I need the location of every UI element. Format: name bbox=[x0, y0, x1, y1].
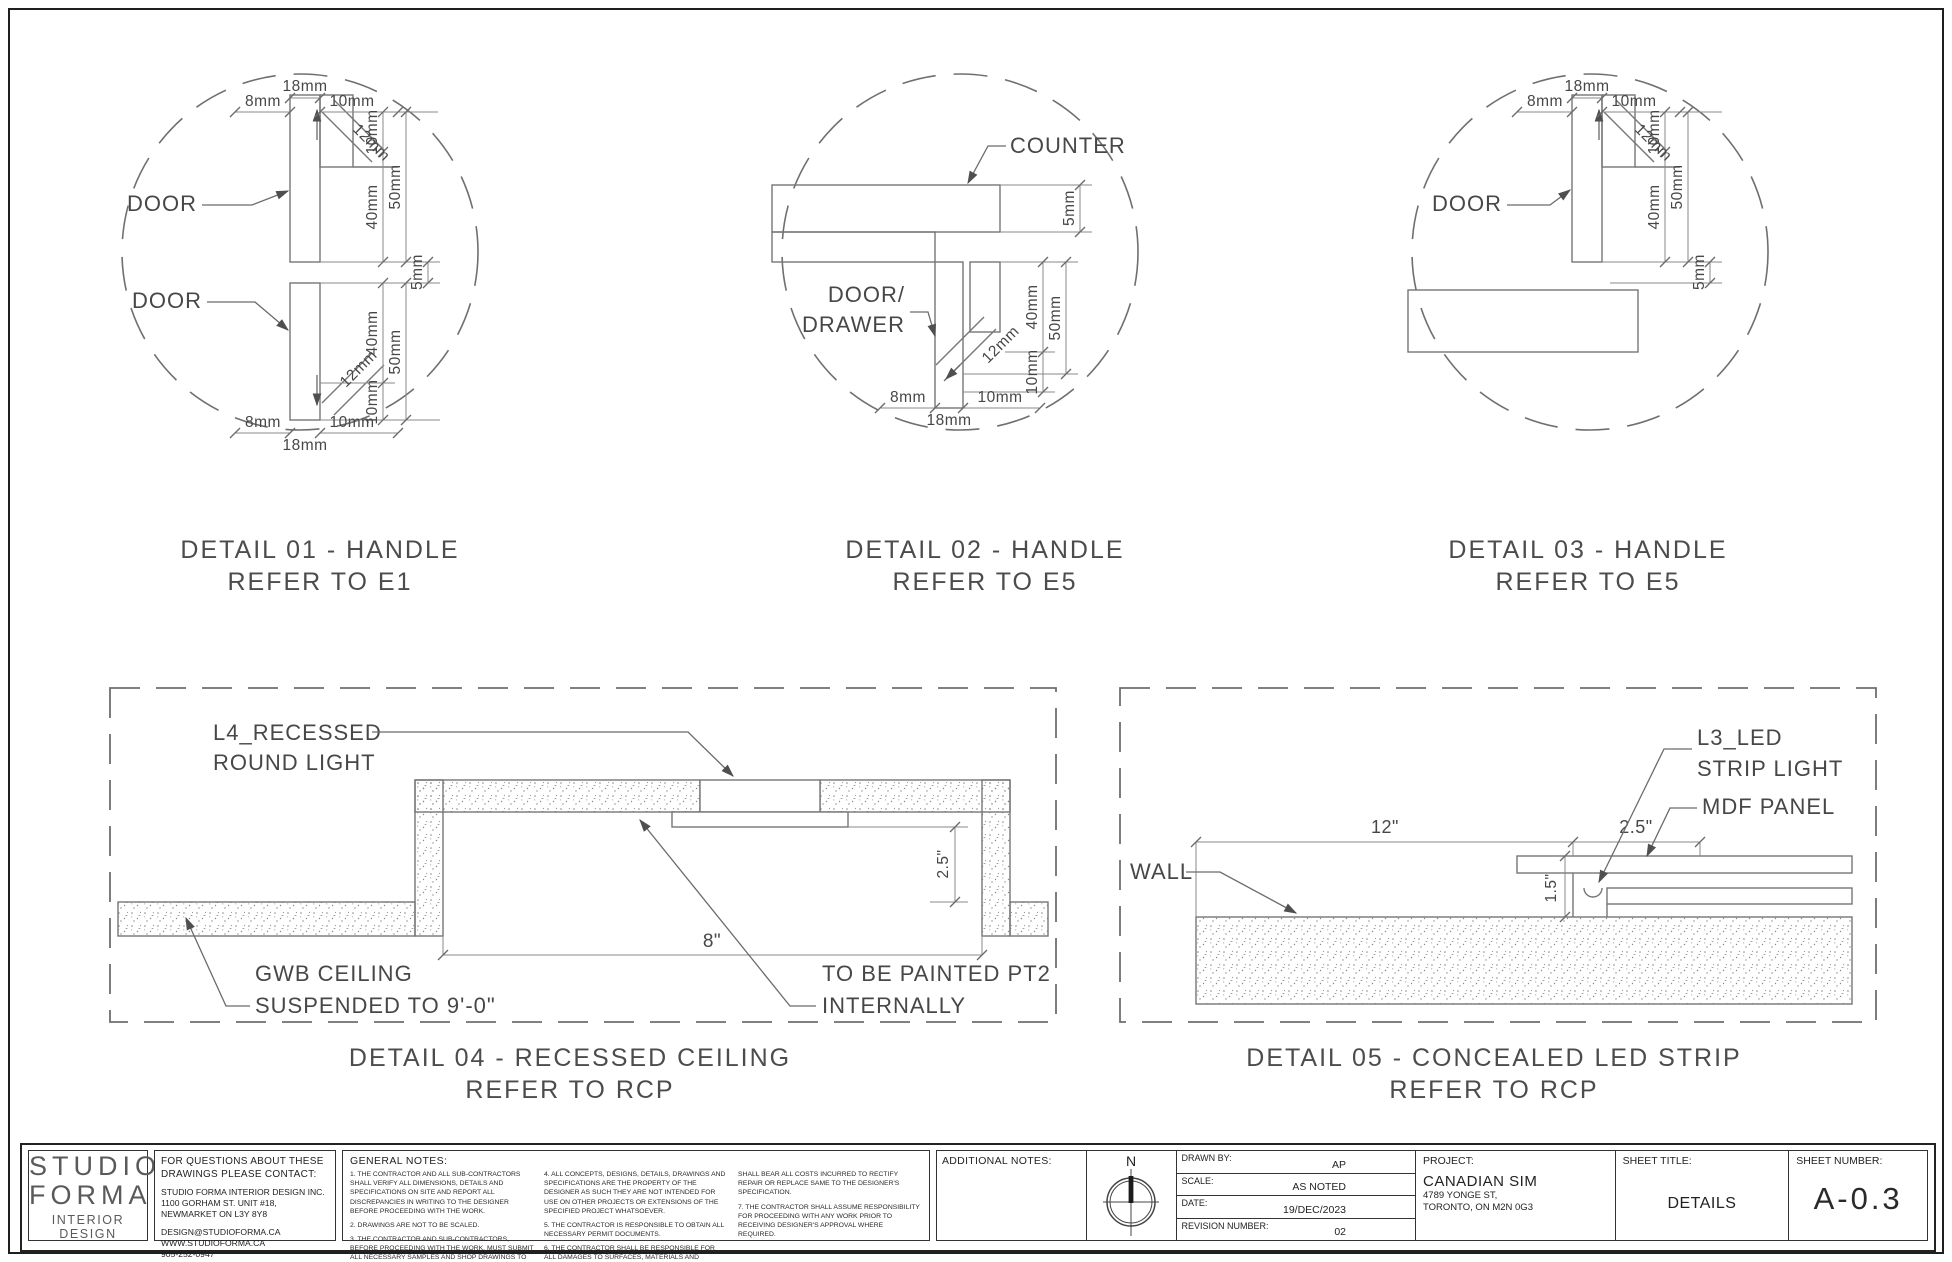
d02-door-label-2: DRAWER bbox=[802, 312, 905, 337]
d05-led-strip bbox=[1584, 888, 1602, 897]
d01-dim-50mm-stack: 50mm bbox=[387, 164, 404, 209]
sheet-number-cell: SHEET NUMBER: A-0.3 bbox=[1789, 1151, 1927, 1240]
contact-address-1: 1100 GORHAM ST. UNIT #18, bbox=[161, 1198, 329, 1209]
d03-dim-10mm: 10mm bbox=[1611, 93, 1656, 110]
d04-gwb-label-2: SUSPENDED TO 9'-0" bbox=[255, 993, 496, 1018]
contact-address-2: NEWMARKET ON L3Y 8Y8 bbox=[161, 1209, 329, 1220]
logo-studio: STUDIO bbox=[29, 1153, 147, 1180]
d05-mdf-panel-top bbox=[1517, 856, 1852, 873]
d02-dim-8mm-bottom: 8mm bbox=[890, 389, 926, 406]
d05-led-label-1: L3_LED bbox=[1697, 725, 1783, 750]
detail-02-handle: 5mm 40mm 50mm 10mm 12mm 8mm 10mm 18mm CO… bbox=[772, 74, 1138, 596]
d04-lower-ceiling-left bbox=[118, 902, 415, 936]
d04-paint-leader bbox=[640, 820, 816, 1006]
d01-upper-door bbox=[290, 95, 320, 262]
d02-door-label-1: DOOR/ bbox=[828, 282, 905, 307]
contact-heading-2: DRAWINGS PLEASE CONTACT: bbox=[161, 1169, 329, 1182]
d04-light-label-2: ROUND LIGHT bbox=[213, 750, 376, 775]
d01-dim-18mm-bottom: 18mm bbox=[282, 437, 327, 454]
d05-dim-panel: 2.5" bbox=[1619, 817, 1652, 837]
date-label: DATE: bbox=[1182, 1198, 1208, 1208]
detail-04-recessed-ceiling: 2.5" 8" L4_RECESSED ROUND LIGHT GWB CEIL… bbox=[110, 688, 1056, 1104]
d03-dim-8mm: 8mm bbox=[1527, 93, 1563, 110]
title-block: STUDIO FORMA INTERIOR DESIGN FOR QUESTIO… bbox=[20, 1143, 1936, 1252]
d04-lower-ceiling-right bbox=[1010, 902, 1048, 936]
d04-gwb-label-1: GWB CEILING bbox=[255, 961, 413, 986]
d03-door-leader bbox=[1507, 190, 1570, 205]
note-3: 3. THE CONTRACTOR AND SUB-CONTRACTORS, B… bbox=[350, 1235, 534, 1262]
d03-subtitle: REFER TO E5 bbox=[1495, 568, 1680, 596]
d01-dim-8mm-bottom: 8mm bbox=[245, 414, 281, 431]
project-address-1: 4789 YONGE ST, bbox=[1423, 1190, 1608, 1202]
d02-apron bbox=[772, 232, 935, 262]
d01-door-leader-top bbox=[202, 191, 288, 205]
d04-light-leader bbox=[372, 732, 733, 776]
d01-dimension-ticks bbox=[230, 93, 433, 438]
d01-title: DETAIL 01 - HANDLE bbox=[180, 536, 459, 564]
d01-dim-10mm-top: 10mm bbox=[329, 93, 374, 110]
revision-label: REVISION NUMBER: bbox=[1182, 1221, 1269, 1231]
d01-dim-40mm-lower: 40mm bbox=[364, 310, 381, 355]
sheet-number-value: A-0.3 bbox=[1796, 1181, 1920, 1217]
d05-wall-section bbox=[1196, 917, 1852, 1004]
field-scale: SCALE: AS NOTED bbox=[1177, 1174, 1416, 1197]
d04-recessed-light bbox=[700, 780, 820, 812]
d05-mdf-panel-lower bbox=[1607, 888, 1852, 904]
d01-lower-door bbox=[290, 283, 320, 420]
d04-paint-label-1: TO BE PAINTED PT2 bbox=[822, 961, 1051, 986]
contact-website: WWW.STUDIOFORMA.CA bbox=[161, 1238, 329, 1249]
d02-door-leader bbox=[910, 312, 935, 336]
d04-recess-wall-right bbox=[982, 780, 1010, 936]
d03-dim-10mm-stack: 10mm bbox=[1646, 109, 1663, 154]
project-label: PROJECT: bbox=[1423, 1155, 1608, 1167]
d05-subtitle: REFER TO RCP bbox=[1389, 1076, 1598, 1104]
note-2: 2. DRAWINGS ARE NOT TO BE SCALED. bbox=[350, 1221, 534, 1230]
additional-notes-label: ADDITIONAL NOTES: bbox=[937, 1151, 1086, 1171]
d02-countertop bbox=[772, 185, 1000, 232]
details-drawing: 18mm 8mm 10mm 12mm 10mm 40mm 50mm 5mm 12… bbox=[0, 0, 1952, 1140]
additional-notes: ADDITIONAL NOTES: bbox=[937, 1151, 1087, 1240]
d05-mdf-leader bbox=[1647, 808, 1697, 856]
d05-wall-label: WALL bbox=[1130, 859, 1193, 884]
d02-door-drawer bbox=[935, 262, 963, 408]
project-name: CANADIAN SIM bbox=[1423, 1173, 1608, 1190]
north-arrow-icon: N bbox=[1089, 1152, 1173, 1240]
d02-subtitle: REFER TO E5 bbox=[892, 568, 1077, 596]
d02-dim-12mm: 12mm bbox=[979, 323, 1023, 367]
general-notes-heading: GENERAL NOTES: bbox=[350, 1155, 922, 1167]
note-6-cont: SHALL BEAR ALL COSTS INCURRED TO RECTIFY… bbox=[738, 1170, 922, 1198]
general-notes-col-1: 1. THE CONTRACTOR AND ALL SUB-CONTRACTOR… bbox=[350, 1170, 534, 1262]
d03-door bbox=[1572, 95, 1602, 262]
contact-email: DESIGN@STUDIOFORMA.CA bbox=[161, 1227, 329, 1238]
field-date: DATE: 19/DEC/2023 bbox=[1177, 1196, 1416, 1219]
contact-info: FOR QUESTIONS ABOUT THESE DRAWINGS PLEAS… bbox=[154, 1150, 336, 1241]
d02-counter-label: COUNTER bbox=[1010, 133, 1126, 158]
d02-dim-18mm-bottom: 18mm bbox=[926, 412, 971, 429]
note-5: 5. THE CONTRACTOR IS RESPONSIBLE TO OBTA… bbox=[544, 1221, 728, 1239]
detail-02-boundary-circle bbox=[782, 74, 1138, 430]
d01-door-label-top: DOOR bbox=[127, 191, 197, 216]
d03-door-label: DOOR bbox=[1432, 191, 1502, 216]
drawing-sheet: 18mm 8mm 10mm 12mm 10mm 40mm 50mm 5mm 12… bbox=[0, 0, 1952, 1262]
sheet-title-label: SHEET TITLE: bbox=[1623, 1155, 1782, 1167]
d04-dim-depth: 2.5" bbox=[935, 849, 952, 878]
d05-wall-leader bbox=[1186, 872, 1296, 913]
d02-dim-50mm: 50mm bbox=[1047, 295, 1064, 340]
d02-handle-arrow bbox=[946, 365, 960, 379]
logo-forma: FORMA bbox=[29, 1182, 147, 1209]
d04-light-plate bbox=[672, 812, 848, 827]
d01-door-leader-bottom bbox=[207, 302, 288, 330]
north-arr-cell: N bbox=[1087, 1151, 1177, 1240]
d05-dimension-lines bbox=[1196, 842, 1700, 917]
d01-subtitle: REFER TO E1 bbox=[227, 568, 412, 596]
d03-counter-slab bbox=[1408, 290, 1638, 352]
d01-dim-5mm-stack: 5mm bbox=[409, 254, 426, 290]
detail-05-concealed-led: 12" 2.5" 1.5" WALL L3_LED STRIP LIGHT MD… bbox=[1120, 688, 1876, 1104]
d04-title: DETAIL 04 - RECESSED CEILING bbox=[349, 1044, 791, 1072]
d01-dim-50mm-lower: 50mm bbox=[387, 329, 404, 374]
detail-03-boundary-circle bbox=[1412, 74, 1768, 430]
d05-title: DETAIL 05 - CONCEALED LED STRIP bbox=[1246, 1044, 1741, 1072]
d05-dim-pocket: 1.5" bbox=[1543, 873, 1560, 902]
d04-recess-wall-left bbox=[415, 780, 443, 936]
d02-dim-10mm-bottom: 10mm bbox=[977, 389, 1022, 406]
d04-subtitle: REFER TO RCP bbox=[465, 1076, 674, 1104]
detail-01-handle: 18mm 8mm 10mm 12mm 10mm 40mm 50mm 5mm 12… bbox=[122, 74, 478, 596]
d05-panel-return bbox=[1573, 873, 1607, 917]
revision-value: 02 bbox=[1334, 1226, 1346, 1238]
d03-dim-5mm-stack: 5mm bbox=[1691, 254, 1708, 290]
sheet-title-value: DETAILS bbox=[1623, 1195, 1782, 1213]
d05-dim-run: 12" bbox=[1371, 817, 1399, 837]
general-notes-col-2: 4. ALL CONCEPTS, DESIGNS, DETAILS, DRAWI… bbox=[544, 1170, 728, 1262]
drawn-by-value: AP bbox=[1332, 1159, 1346, 1171]
d02-dim-10mm: 10mm bbox=[1024, 349, 1041, 394]
logo-interior-design: INTERIOR DESIGN bbox=[29, 1213, 147, 1241]
north-letter: N bbox=[1126, 1153, 1136, 1169]
d02-dim-5mm: 5mm bbox=[1061, 190, 1078, 226]
d03-title: DETAIL 03 - HANDLE bbox=[1448, 536, 1727, 564]
general-notes-col-3: SHALL BEAR ALL COSTS INCURRED TO RECTIFY… bbox=[738, 1170, 922, 1262]
d05-led-label-2: STRIP LIGHT bbox=[1697, 756, 1843, 781]
d01-dim-40mm-stack: 40mm bbox=[364, 184, 381, 229]
d05-mdf-label: MDF PANEL bbox=[1702, 794, 1835, 819]
scale-value: AS NOTED bbox=[1292, 1181, 1346, 1193]
field-revision: REVISION NUMBER: 02 bbox=[1177, 1219, 1416, 1241]
d02-counter-leader bbox=[968, 146, 1006, 183]
contact-heading-1: FOR QUESTIONS ABOUT THESE bbox=[161, 1156, 329, 1169]
d03-dim-18mm: 18mm bbox=[1564, 78, 1609, 95]
field-drawn-by: DRAWN BY: AP bbox=[1177, 1151, 1416, 1174]
d04-dim-width: 8" bbox=[703, 931, 721, 952]
project-address-2: TORONTO, ON M2N 0G3 bbox=[1423, 1202, 1608, 1214]
contact-company: STUDIO FORMA INTERIOR DESIGN INC. bbox=[161, 1187, 329, 1198]
detail-03-handle: 18mm 8mm 10mm 12mm 10mm 40mm 50mm 5mm DO… bbox=[1408, 74, 1768, 596]
d02-title: DETAIL 02 - HANDLE bbox=[845, 536, 1124, 564]
note-7: 7. THE CONTRACTOR SHALL ASSUME RESPONSIB… bbox=[738, 1203, 922, 1240]
d01-dim-8mm-top: 8mm bbox=[245, 93, 281, 110]
d04-paint-label-2: INTERNALLY bbox=[822, 993, 966, 1018]
date-value: 19/DEC/2023 bbox=[1283, 1204, 1346, 1216]
contact-phone: 905-252-0947 bbox=[161, 1249, 329, 1260]
sheet-number-label: SHEET NUMBER: bbox=[1796, 1155, 1920, 1167]
drawn-by-label: DRAWN BY: bbox=[1182, 1153, 1232, 1163]
detail-01-boundary-circle bbox=[122, 74, 478, 430]
company-logo: STUDIO FORMA INTERIOR DESIGN bbox=[28, 1150, 148, 1241]
d03-dim-40mm-stack: 40mm bbox=[1646, 184, 1663, 229]
d04-ceiling-band-left bbox=[415, 780, 700, 812]
d03-dim-50mm-stack: 50mm bbox=[1669, 164, 1686, 209]
project-cell: PROJECT: CANADIAN SIM 4789 YONGE ST, TOR… bbox=[1416, 1151, 1616, 1240]
drawing-info-fields: DRAWN BY: AP SCALE: AS NOTED DATE: 19/DE… bbox=[1177, 1151, 1417, 1240]
note-6: 6. THE CONTRACTOR SHALL BE RESPONSIBLE F… bbox=[544, 1244, 728, 1262]
d04-light-label-1: L4_RECESSED bbox=[213, 720, 382, 745]
scale-label: SCALE: bbox=[1182, 1176, 1214, 1186]
d01-door-label-bottom: DOOR bbox=[132, 288, 202, 313]
note-4: 4. ALL CONCEPTS, DESIGNS, DETAILS, DRAWI… bbox=[544, 1170, 728, 1216]
note-1: 1. THE CONTRACTOR AND ALL SUB-CONTRACTOR… bbox=[350, 1170, 534, 1216]
d05-dimension-ticks bbox=[1191, 837, 1705, 922]
sheet-title-cell: SHEET TITLE: DETAILS bbox=[1616, 1151, 1790, 1240]
d01-dim-10mm-stack: 10mm bbox=[364, 109, 381, 154]
d02-dim-40mm: 40mm bbox=[1024, 284, 1041, 329]
d02-gable bbox=[970, 262, 1000, 332]
d01-dim-18mm-top: 18mm bbox=[282, 78, 327, 95]
d01-dim-10mm-bottom: 10mm bbox=[329, 414, 374, 431]
title-block-right: ADDITIONAL NOTES: N DRAWN BY: AP bbox=[936, 1150, 1928, 1241]
general-notes: GENERAL NOTES: 1. THE CONTRACTOR AND ALL… bbox=[342, 1150, 930, 1241]
